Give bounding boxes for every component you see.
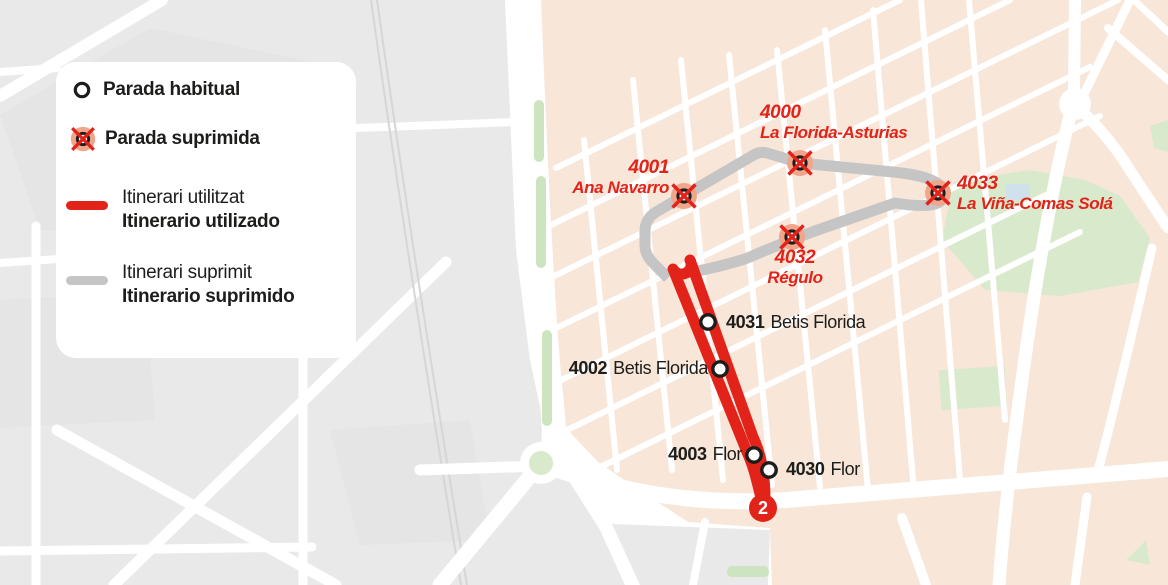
regular-stop-marker-4031 xyxy=(701,315,715,329)
legend-item-used-route: Itinerari utilitzat Itinerario utilizado xyxy=(122,186,280,234)
line-2-badge: 2 xyxy=(749,494,777,522)
suppressed-stop-marker-4033 xyxy=(925,180,951,206)
legend-removed-cat-label: Itinerari suprimit xyxy=(122,261,294,285)
removed-route-swatch xyxy=(66,276,108,285)
stop-label-4000: 4000 La Florida-Asturias xyxy=(760,103,907,142)
legend-item-removed-route: Itinerari suprimit Itinerario suprimido xyxy=(122,261,294,309)
legend-used-es-label: Itinerario utilizado xyxy=(122,210,280,234)
legend-habitual-label: Parada habitual xyxy=(103,79,240,101)
suppressed-stop-icon xyxy=(68,124,98,154)
used-route-swatch xyxy=(66,201,108,210)
regular-stop-marker-4030 xyxy=(762,463,776,477)
stop-label-4033: 4033 La Viña-Comas Solá xyxy=(957,174,1113,213)
suppressed-stop-marker-4001 xyxy=(671,183,697,209)
stop-label-4003: 4003Flor xyxy=(668,444,742,464)
regular-stop-icon xyxy=(68,76,96,104)
line-2-badge-label: 2 xyxy=(758,498,768,519)
stop-label-4001: 4001 Ana Navarro xyxy=(572,158,669,197)
legend-item-parada-habitual: Parada habitual xyxy=(68,76,240,104)
legend-suprimida-label: Parada suprimida xyxy=(105,128,260,150)
legend-removed-es-label: Itinerario suprimido xyxy=(122,285,294,309)
stop-label-4002: 4002Betis Florida xyxy=(569,358,708,378)
suppressed-stop-marker-4000 xyxy=(787,150,813,176)
route-map-infographic: 4000 La Florida-Asturias 4001 Ana Navarr… xyxy=(0,0,1168,585)
stop-label-4031: 4031Betis Florida xyxy=(726,312,865,332)
legend-item-parada-suprimida: Parada suprimida xyxy=(68,125,260,153)
legend-card: Parada habitual Parada suprimida Itinera… xyxy=(56,62,356,358)
junction-plaza xyxy=(1059,88,1091,120)
roundabout xyxy=(520,442,562,484)
regular-stop-marker-4003 xyxy=(747,448,761,462)
regular-stop-marker-4002 xyxy=(713,362,727,376)
legend-used-cat-label: Itinerari utilitzat xyxy=(122,186,280,210)
stop-label-4030: 4030Flor xyxy=(786,459,860,479)
stop-label-4032: 4032 Régulo xyxy=(725,248,865,287)
